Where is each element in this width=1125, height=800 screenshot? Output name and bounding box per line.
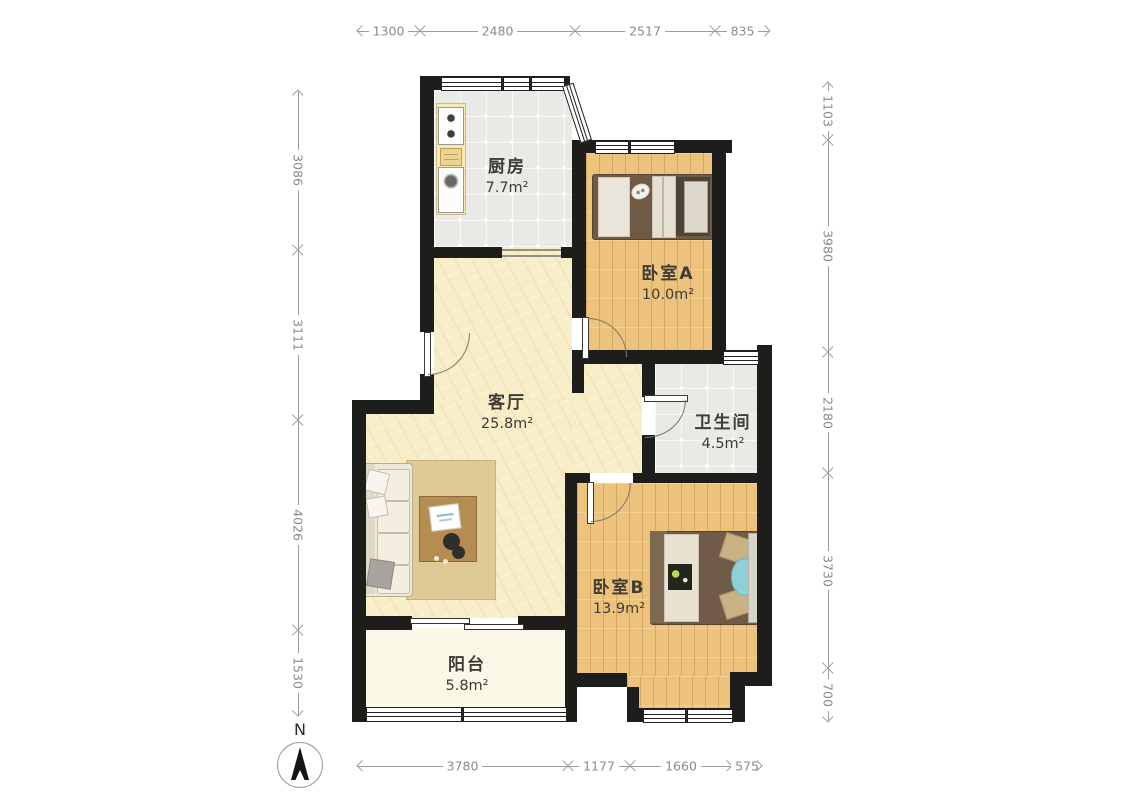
- bed-a-nightstand-top: [684, 181, 708, 233]
- dimension-bottom: 3780: [357, 759, 568, 773]
- floor-plan-canvas: 厨房 7.7m² 卧室A 10.0m² 客厅 25.8m² 卫生间 4.5m² …: [0, 0, 1125, 800]
- wall: [420, 258, 434, 332]
- wall: [352, 616, 412, 630]
- room-area: 13.9m²: [593, 601, 646, 617]
- room-name: 客厅: [481, 388, 533, 413]
- wall: [352, 400, 434, 414]
- dimension-right: 700: [821, 668, 835, 722]
- dimension-left: 3086: [291, 90, 305, 250]
- room-area: 25.8m²: [481, 416, 533, 432]
- dimension-left: 1530: [291, 630, 305, 716]
- room-label-balcony: 阳台 5.8m²: [446, 650, 489, 694]
- room-label-bathroom: 卫生间 4.5m²: [695, 408, 752, 452]
- dimension-top: 2480: [420, 24, 575, 38]
- room-area: 7.7m²: [486, 180, 529, 196]
- room-name: 卧室A: [641, 259, 694, 284]
- room-area: 10.0m²: [641, 287, 694, 303]
- bed-b-tray: [668, 564, 692, 590]
- balcony-sliding-door: [464, 624, 524, 630]
- room-area: 4.5m²: [695, 436, 752, 452]
- compass: N: [272, 720, 328, 788]
- wall: [572, 356, 584, 393]
- balcony-sliding-door: [410, 618, 470, 624]
- stove-icon: [438, 107, 464, 145]
- dimension-bottom: 575: [732, 759, 762, 773]
- kitchen-opening: [502, 249, 561, 251]
- throw-pillow: [365, 495, 388, 518]
- wall: [712, 140, 726, 352]
- bedroom-b-window: [643, 709, 733, 723]
- room-label-kitchen: 厨房 7.7m²: [486, 152, 529, 196]
- room-label-living-room: 客厅 25.8m²: [481, 388, 533, 432]
- bathroom-window: [723, 351, 759, 365]
- compass-needle-notch: [295, 770, 305, 781]
- kitchen-opening: [502, 255, 561, 257]
- bedroom-a-window: [595, 141, 675, 154]
- wall: [420, 247, 502, 258]
- dimension-left: 4026: [291, 420, 305, 630]
- dimension-left: 3111: [291, 250, 305, 420]
- compass-circle: [277, 742, 323, 788]
- room-name: 卧室B: [593, 573, 646, 598]
- room-label-bedroom-b: 卧室B 13.9m²: [593, 573, 646, 617]
- dimension-top: 1300: [357, 24, 420, 38]
- room-name: 厨房: [486, 152, 529, 177]
- wall: [420, 76, 434, 258]
- bedroom-b-floor-nook: [627, 676, 740, 712]
- dimension-top: 835: [715, 24, 770, 38]
- kitchen-sink-icon: [438, 167, 464, 213]
- dimension-right: 3730: [821, 473, 835, 668]
- dimension-top: 2517: [575, 24, 715, 38]
- dimension-bottom: 1660: [630, 759, 732, 773]
- wall: [352, 414, 366, 722]
- room-label-bedroom-a: 卧室A 10.0m²: [641, 259, 694, 303]
- wall: [642, 435, 655, 473]
- bed-a-pillow: [598, 177, 630, 237]
- kitchen-window: [441, 77, 565, 91]
- room-name: 卫生间: [695, 408, 752, 433]
- dimension-right: 2180: [821, 352, 835, 473]
- table-dot: [434, 556, 439, 561]
- bed-a-sheet: [652, 176, 676, 238]
- cutting-board-icon: [440, 148, 462, 166]
- wall: [561, 247, 585, 258]
- dimension-bottom: 1177: [568, 759, 630, 773]
- wall: [572, 140, 586, 318]
- wall: [642, 362, 655, 397]
- gray-pillow: [366, 558, 395, 590]
- magazine: [429, 503, 462, 531]
- dimension-right: 1103: [821, 82, 835, 140]
- wall: [565, 673, 627, 687]
- wall: [757, 345, 772, 686]
- room-area: 5.8m²: [446, 678, 489, 694]
- dimension-right: 3980: [821, 140, 835, 352]
- room-name: 阳台: [446, 650, 489, 675]
- teacup-icon: [452, 546, 465, 559]
- wall: [633, 473, 772, 483]
- balcony-window: [366, 707, 567, 722]
- compass-north-label: N: [272, 720, 328, 739]
- table-dot: [443, 559, 448, 564]
